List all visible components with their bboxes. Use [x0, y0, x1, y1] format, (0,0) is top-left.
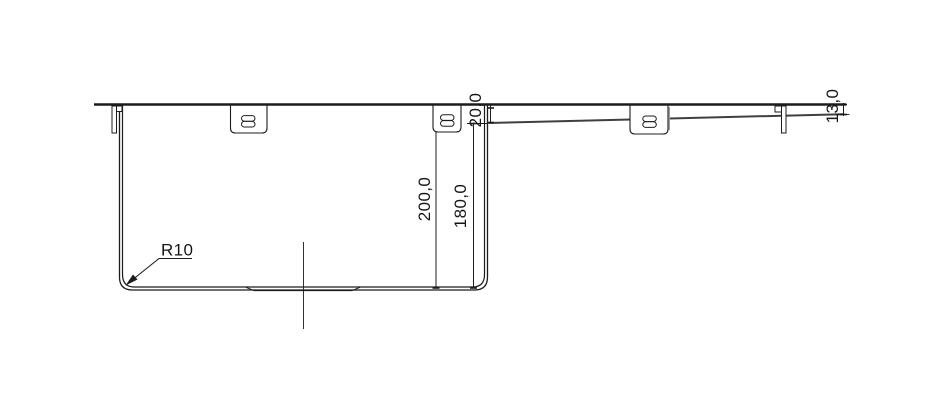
fixing-clip-left [112, 106, 122, 133]
dim-label-20: 20,0 [466, 93, 485, 128]
sink-cross-section-drawing: R10 200,0 180,0 20,0 13,0 [0, 0, 938, 417]
fixing-clip-right [775, 106, 786, 133]
dim-label-200: 200,0 [415, 177, 434, 222]
screw-slot-icon [242, 116, 256, 122]
leader-arrowhead-icon [126, 275, 138, 286]
dim-label-180: 180,0 [451, 184, 470, 229]
screw-slot-icon [643, 116, 657, 122]
drawing-sheet: R10 200,0 180,0 20,0 13,0 [0, 0, 938, 417]
mounting-tab-left [231, 105, 268, 133]
screw-slot-icon [643, 122, 657, 128]
radius-callout: R10 [126, 241, 194, 286]
mounting-tab-middle [433, 105, 461, 132]
radius-label: R10 [161, 241, 193, 260]
dim-label-13: 13,0 [823, 89, 842, 124]
leader-line [131, 259, 192, 282]
mounting-tab-right [630, 105, 669, 134]
screw-slot-icon [441, 121, 455, 127]
screw-slot-icon [441, 115, 455, 121]
drain-recess-line [246, 287, 360, 290]
screw-slot-icon [242, 121, 256, 127]
